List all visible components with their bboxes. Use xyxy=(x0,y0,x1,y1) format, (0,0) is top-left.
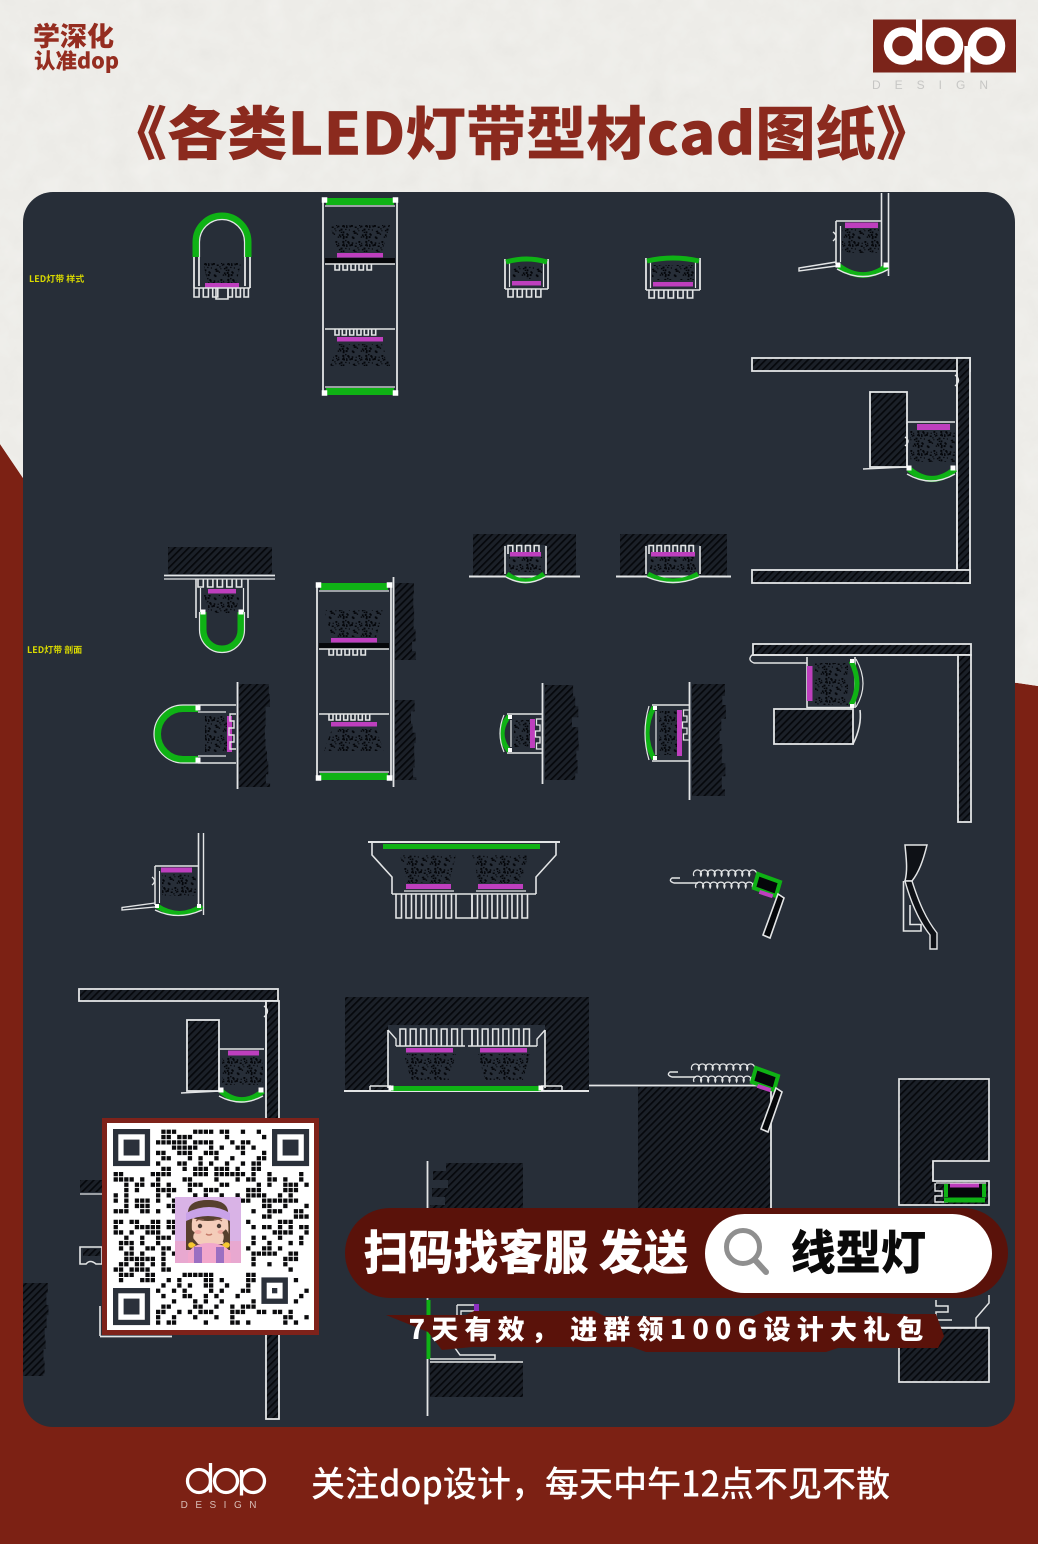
svg-text:DESIGN: DESIGN xyxy=(181,1500,264,1511)
